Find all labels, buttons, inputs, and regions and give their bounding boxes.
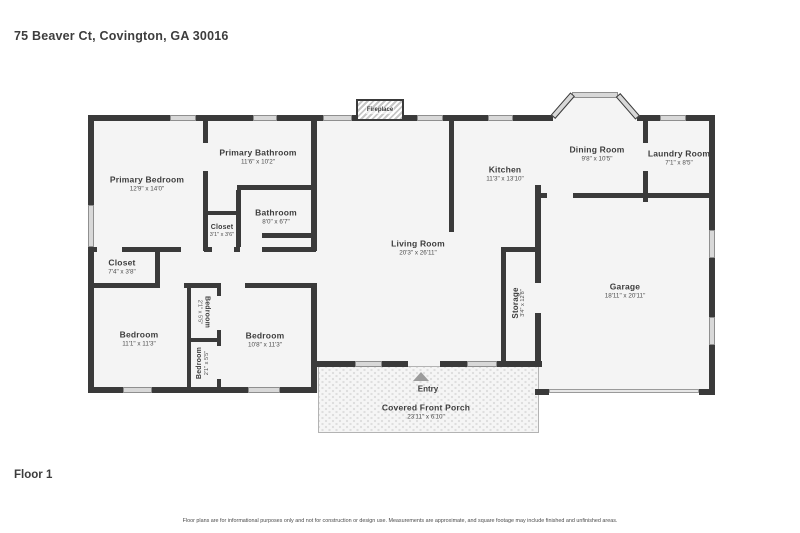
wall-segment: [312, 361, 355, 367]
room-label-laundry-room: Laundry Room 7'1" x 8'5": [648, 150, 710, 167]
window: [417, 115, 443, 121]
wall-segment: [440, 361, 467, 367]
wall-segment: [204, 247, 212, 252]
entry-label: Entry: [418, 385, 438, 394]
floor-number-label: Floor 1: [14, 469, 52, 481]
window: [248, 387, 280, 393]
window: [467, 361, 497, 367]
wall-segment: [449, 115, 454, 232]
wall-segment: [122, 247, 181, 252]
window: [323, 115, 352, 121]
bay-window: [572, 92, 618, 98]
wall-segment: [643, 117, 648, 143]
wall-segment: [217, 379, 221, 387]
wall-segment: [187, 338, 221, 342]
window: [88, 205, 94, 247]
wall-segment: [262, 247, 316, 252]
room-label-storage: Storage 3'4" x 12'8": [512, 287, 527, 318]
room-label-primary-bedroom: Primary Bedroom 12'9" x 14'0": [110, 176, 184, 193]
wall-segment: [245, 283, 316, 288]
entry-arrow-icon: [413, 372, 429, 381]
window: [253, 115, 277, 121]
room-label-dining-room: Dining Room 9'8" x 10'5": [569, 146, 624, 163]
fireplace-label: Fireplace: [366, 107, 394, 114]
room-label-bathroom: Bathroom 8'0" x 6'7": [255, 209, 297, 226]
fireplace: Fireplace: [356, 99, 404, 121]
room-label-living-room: Living Room 20'3" x 26'11": [391, 240, 445, 257]
wall-segment: [311, 283, 317, 393]
wall-segment: [88, 247, 97, 252]
floor-plan: Fireplace Entry Primary Bedroom 12'9" x …: [0, 0, 800, 533]
room-label-bedroom-closet-bottom: Bedroom 2'1" x 5'5": [196, 347, 211, 379]
window: [488, 115, 513, 121]
room-label-primary-bathroom: Primary Bathroom 11'6" x 10'2": [219, 149, 296, 166]
wall-segment: [88, 283, 160, 288]
wall-segment: [501, 247, 540, 252]
wall-segment: [262, 233, 316, 238]
window: [709, 317, 715, 345]
wall-segment: [217, 287, 221, 296]
wall-segment: [236, 190, 241, 247]
wall-segment: [535, 185, 541, 283]
window: [355, 361, 382, 367]
room-label-bedroom-left: Bedroom 11'1" x 11'3": [120, 331, 159, 348]
window: [123, 387, 152, 393]
wall-segment: [88, 115, 553, 121]
wall-segment: [237, 185, 316, 190]
wall-segment: [311, 115, 317, 251]
floor-plan-page: 75 Beaver Ct, Covington, GA 30016: [0, 0, 800, 533]
wall-segment: [699, 389, 715, 395]
wall-segment: [234, 247, 240, 252]
room-label-closet-small: Closet 3'1" x 3'6": [210, 224, 234, 239]
wall-segment: [501, 247, 506, 366]
window: [660, 115, 686, 121]
wall-segment: [535, 313, 541, 366]
wall-segment: [203, 211, 240, 215]
wall-segment: [535, 389, 549, 395]
wall-segment: [203, 117, 208, 143]
window: [170, 115, 196, 121]
room-label-garage: Garage 18'11" x 20'11": [605, 283, 646, 300]
wall-segment: [88, 115, 94, 393]
room-label-bedroom-closet-top: Bedroom 2'1" x 5'5": [196, 296, 211, 328]
wall-segment: [382, 361, 408, 367]
disclaimer-text: Floor plans are for informational purpos…: [0, 518, 800, 524]
room-label-kitchen: Kitchen 11'3" x 13'10": [486, 166, 524, 183]
window: [709, 230, 715, 258]
room-label-closet-hall: Closet 7'4" x 3'8": [108, 259, 136, 276]
room-label-covered-front-porch: Covered Front Porch 23'11" x 6'10": [382, 404, 470, 421]
garage-door: [549, 389, 699, 393]
wall-segment: [573, 193, 715, 198]
room-label-bedroom-right: Bedroom 10'8" x 11'3": [246, 332, 285, 349]
wall-segment: [155, 251, 160, 287]
wall-segment: [187, 287, 191, 387]
